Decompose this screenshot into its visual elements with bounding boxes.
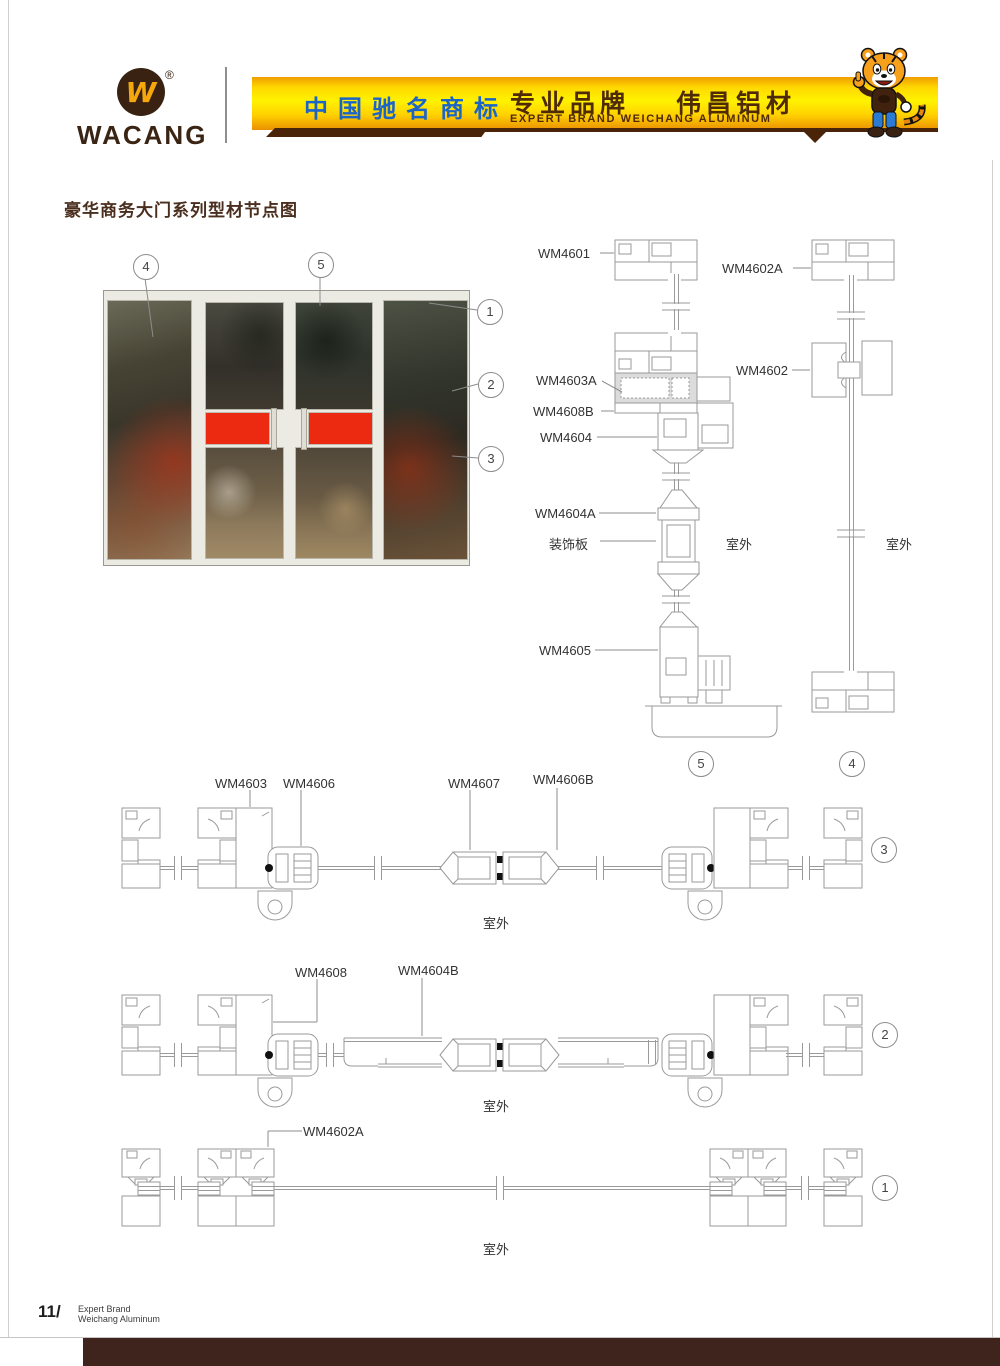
label-outdoor-row1: 室外	[483, 1239, 509, 1258]
label-wm4604b: WM4604B	[398, 963, 459, 978]
label-wm4603a: WM4603A	[536, 373, 597, 388]
label-wm4604: WM4604	[540, 430, 592, 445]
callout-photo-2: 2	[478, 372, 504, 398]
label-wm4607: WM4607	[448, 776, 500, 791]
label-outdoor-row3: 室外	[483, 913, 509, 932]
label-wm4606b: WM4606B	[533, 772, 594, 787]
callout-section-5: 5	[688, 751, 714, 777]
callout-section-1: 1	[872, 1175, 898, 1201]
label-wm4602a-row1: WM4602A	[303, 1124, 364, 1139]
callout-photo-4: 4	[133, 254, 159, 280]
callout-photo-5: 5	[308, 252, 334, 278]
cad-diagram	[0, 0, 1000, 1366]
callout-section-3: 3	[871, 837, 897, 863]
label-outdoor-sec5: 室外	[726, 534, 752, 553]
label-wm4606: WM4606	[283, 776, 335, 791]
label-wm4602: WM4602	[736, 363, 788, 378]
label-wm4601: WM4601	[538, 246, 590, 261]
page-number: 11/	[38, 1302, 61, 1322]
label-decorative-panel: 装饰板	[549, 534, 588, 553]
callout-photo-3: 3	[478, 446, 504, 472]
label-wm4603: WM4603	[215, 776, 267, 791]
callout-section-2: 2	[872, 1022, 898, 1048]
label-wm4608b: WM4608B	[533, 404, 594, 419]
label-wm4605: WM4605	[539, 643, 591, 658]
label-wm4602a-top: WM4602A	[722, 261, 783, 276]
label-wm4604a: WM4604A	[535, 506, 596, 521]
label-outdoor-sec4: 室外	[886, 534, 912, 553]
footer-bar	[83, 1338, 1000, 1366]
footer-text: Expert Brand Weichang Aluminum	[78, 1304, 160, 1324]
callout-section-4: 4	[839, 751, 865, 777]
callout-photo-1: 1	[477, 299, 503, 325]
footer-line1: Expert Brand	[78, 1304, 160, 1314]
label-outdoor-row2: 室外	[483, 1096, 509, 1115]
footer-line2: Weichang Aluminum	[78, 1314, 160, 1324]
label-wm4608: WM4608	[295, 965, 347, 980]
